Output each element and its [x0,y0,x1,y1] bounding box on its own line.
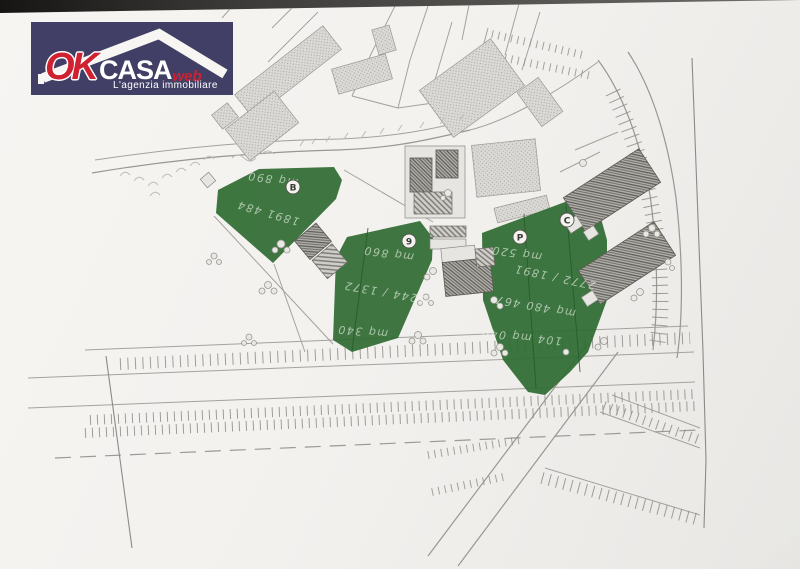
brand-tagline: L'agenzia immobiliare [113,80,218,91]
svg-text:B: B [290,184,297,194]
svg-text:C: C [564,217,571,227]
parcel-label-p: P [513,230,527,244]
site-plan-photo: mq 890 1891 484 mq 860 1244 / 1372 mq 34… [0,0,800,569]
svg-text:P: P [517,234,524,244]
parcel-label-9: 9 [402,234,416,248]
svg-text:9: 9 [406,238,412,248]
brand-ok-text: OK [45,48,96,86]
parcel-label-c: C [560,213,574,227]
okcasa-logo: OK CASA web L'agenzia immobiliare [31,22,233,95]
parcel-label-b: B [286,180,300,194]
